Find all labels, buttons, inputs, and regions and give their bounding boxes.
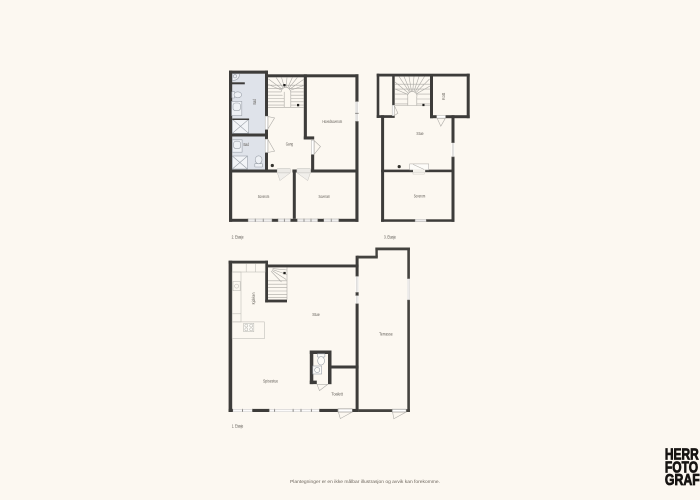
svg-text:Soverom: Soverom	[319, 194, 331, 199]
svg-text:Plantegninger er en ikke målba: Plantegninger er en ikke målbar illustra…	[290, 478, 440, 484]
svg-text:Terrasse: Terrasse	[379, 331, 393, 336]
svg-text:Soverom: Soverom	[414, 194, 426, 199]
svg-text:GRAF: GRAF	[665, 472, 700, 489]
svg-text:3. Etasje: 3. Etasje	[384, 234, 396, 239]
svg-text:Spisestue: Spisestue	[263, 378, 279, 383]
svg-text:Hovedsoverom: Hovedsoverom	[322, 119, 342, 124]
svg-text:Toalett: Toalett	[331, 392, 343, 397]
svg-text:Kott: Kott	[441, 92, 446, 100]
svg-text:Soverom: Soverom	[258, 194, 270, 199]
svg-text:Stue: Stue	[416, 131, 424, 136]
svg-text:2. Etasje: 2. Etasje	[232, 234, 244, 239]
svg-text:Bad: Bad	[243, 142, 249, 147]
svg-text:Bad: Bad	[252, 99, 257, 105]
svg-text:Stue: Stue	[312, 312, 320, 317]
svg-text:Kjøkken: Kjøkken	[251, 292, 256, 304]
svg-text:Gang: Gang	[286, 142, 294, 147]
svg-text:1. Etasje: 1. Etasje	[232, 424, 244, 429]
